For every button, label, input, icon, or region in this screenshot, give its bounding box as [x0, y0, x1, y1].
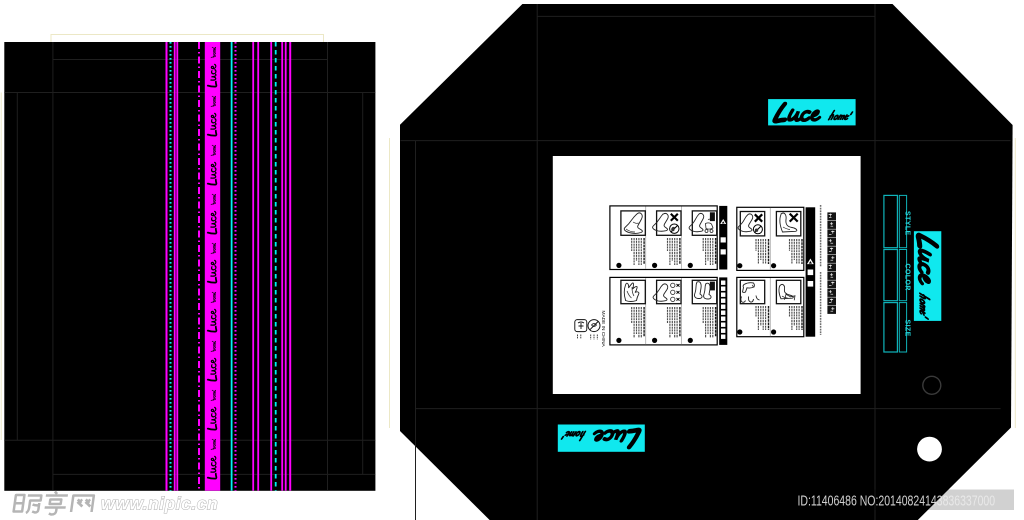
svg-text:COLOR: COLOR: [904, 264, 911, 291]
svg-text:STYLE: STYLE: [904, 211, 911, 236]
svg-text:www.nipic.cn: www.nipic.cn: [101, 494, 218, 514]
svg-text:SIZE: SIZE: [904, 320, 911, 337]
svg-text:MADE IN CHINA: MADE IN CHINA: [600, 311, 606, 348]
svg-text:ID:11406486 NO:201408241438363: ID:11406486 NO:20140824143836337000: [798, 492, 996, 509]
